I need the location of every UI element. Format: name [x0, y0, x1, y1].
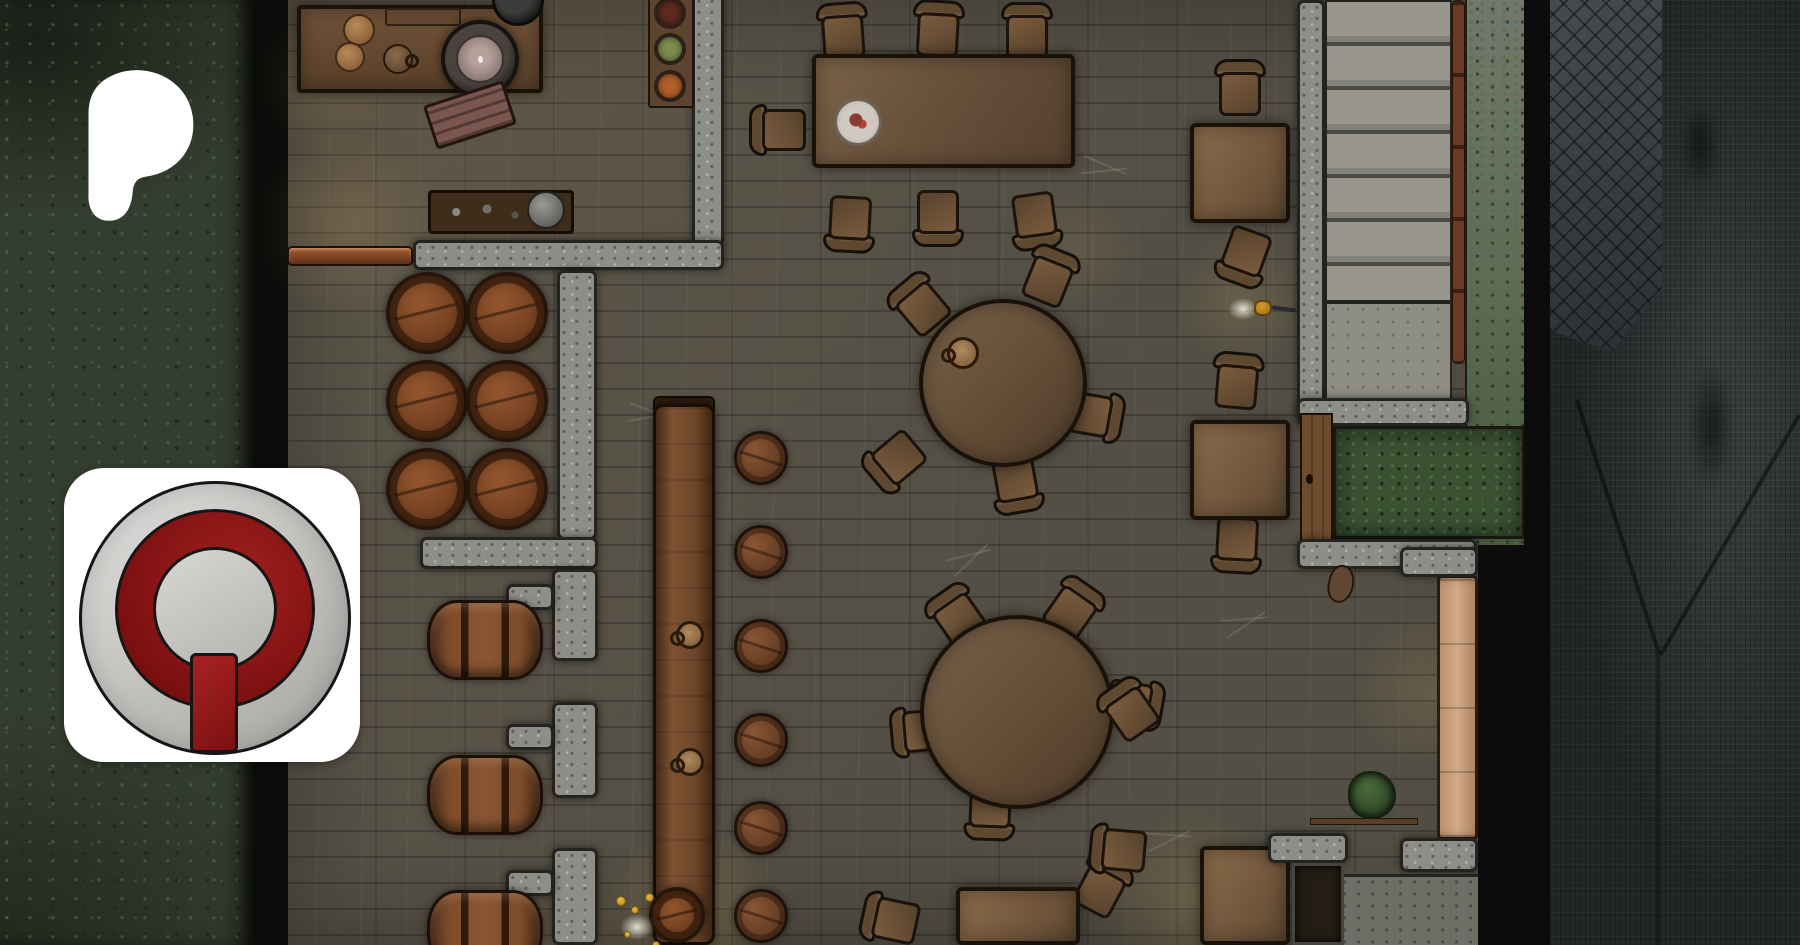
bar-stool: [734, 801, 788, 855]
stair-landing: [1325, 302, 1452, 400]
storage-wall-bottom: [420, 537, 598, 569]
spice-bowl-orange: [654, 70, 686, 102]
dining-chair: [1211, 59, 1269, 121]
bar-stool: [734, 619, 788, 673]
ale-mug: [676, 621, 704, 649]
spilled-coin: [645, 893, 654, 902]
chimney-shadow: [1690, 360, 1734, 490]
stone-staircase: [1325, 0, 1452, 302]
spice-bowl-green: [654, 33, 686, 65]
wooden-gate: [1300, 413, 1333, 545]
roof-seam: [1656, 652, 1660, 945]
round-table: [920, 615, 1114, 809]
patreon-logo-shape: [88, 70, 193, 221]
patreon-logo-icon: [78, 68, 198, 226]
chimney-shadow: [1682, 100, 1718, 190]
dining-chair: [749, 101, 811, 159]
bar-stool: [734, 525, 788, 579]
round-table: [919, 299, 1087, 467]
dining-chair: [1206, 511, 1267, 576]
neighbor-roof-shingles: [1550, 0, 1662, 352]
storage-barrel: [466, 360, 548, 442]
small-wall-table: [1190, 123, 1290, 223]
dining-chair: [1205, 350, 1268, 417]
square-table: [956, 887, 1080, 945]
storage-barrel: [386, 448, 468, 530]
ale-mug: [676, 748, 704, 776]
stair-railing: [1452, 0, 1465, 364]
creator-logo-badge: [64, 468, 360, 762]
small-wall-table: [1190, 420, 1290, 520]
hearth-cabinet: [1292, 863, 1344, 945]
spilled-coin: [652, 941, 660, 945]
bar-stool: [734, 431, 788, 485]
ale-mug: [947, 337, 979, 369]
cauldron-stew: [456, 35, 504, 83]
storage-barrel: [466, 448, 548, 530]
bar-counter: [653, 404, 715, 945]
storage-barrel-side: [427, 600, 543, 680]
storage-barrel: [386, 360, 468, 442]
bar-divider-wall: [552, 848, 598, 945]
potted-plant: [1348, 771, 1396, 819]
cutting-board: [385, 8, 461, 26]
tavern-battlemap: [0, 0, 1800, 945]
storage-barrel-side: [427, 755, 543, 835]
kitchen-wall-horizontal: [413, 240, 724, 270]
dropped-tankard: [1254, 300, 1272, 316]
bar-divider-wall: [552, 702, 598, 798]
storage-wall-right: [557, 270, 597, 540]
metal-pot: [527, 191, 565, 229]
doorframe-wall-bottom: [1400, 838, 1478, 872]
storage-barrel: [386, 272, 468, 354]
kitchen-wall-vertical: [692, 0, 724, 246]
garden-alcove-grass: [1333, 426, 1525, 539]
dining-chair: [819, 190, 880, 255]
hearth-wall: [1268, 833, 1348, 863]
bar-end-barrel: [649, 887, 705, 943]
copper-pipe-counter: [287, 246, 413, 266]
clay-jug: [383, 44, 413, 74]
q-logo-tail: [190, 653, 238, 753]
storage-barrel: [466, 272, 548, 354]
bar-divider-stub: [506, 724, 554, 750]
spilled-coin: [616, 896, 626, 906]
bread-loaf: [335, 42, 365, 72]
dining-chair: [909, 185, 967, 247]
storage-barrel-side: [427, 890, 543, 945]
bar-divider-wall: [552, 569, 598, 661]
alley-gap: [1478, 545, 1552, 945]
dining-chair: [1087, 818, 1154, 881]
bar-stool: [734, 713, 788, 767]
food-plate: [834, 98, 882, 146]
stairwell-wall: [1297, 0, 1325, 424]
entry-double-door: [1437, 575, 1478, 840]
spilled-coin: [624, 931, 631, 938]
entry-shelf: [1310, 818, 1418, 825]
spilled-coin: [631, 906, 639, 914]
doorframe-wall-top: [1400, 547, 1478, 577]
alley-gap: [1524, 0, 1552, 552]
bar-stool: [734, 889, 788, 943]
